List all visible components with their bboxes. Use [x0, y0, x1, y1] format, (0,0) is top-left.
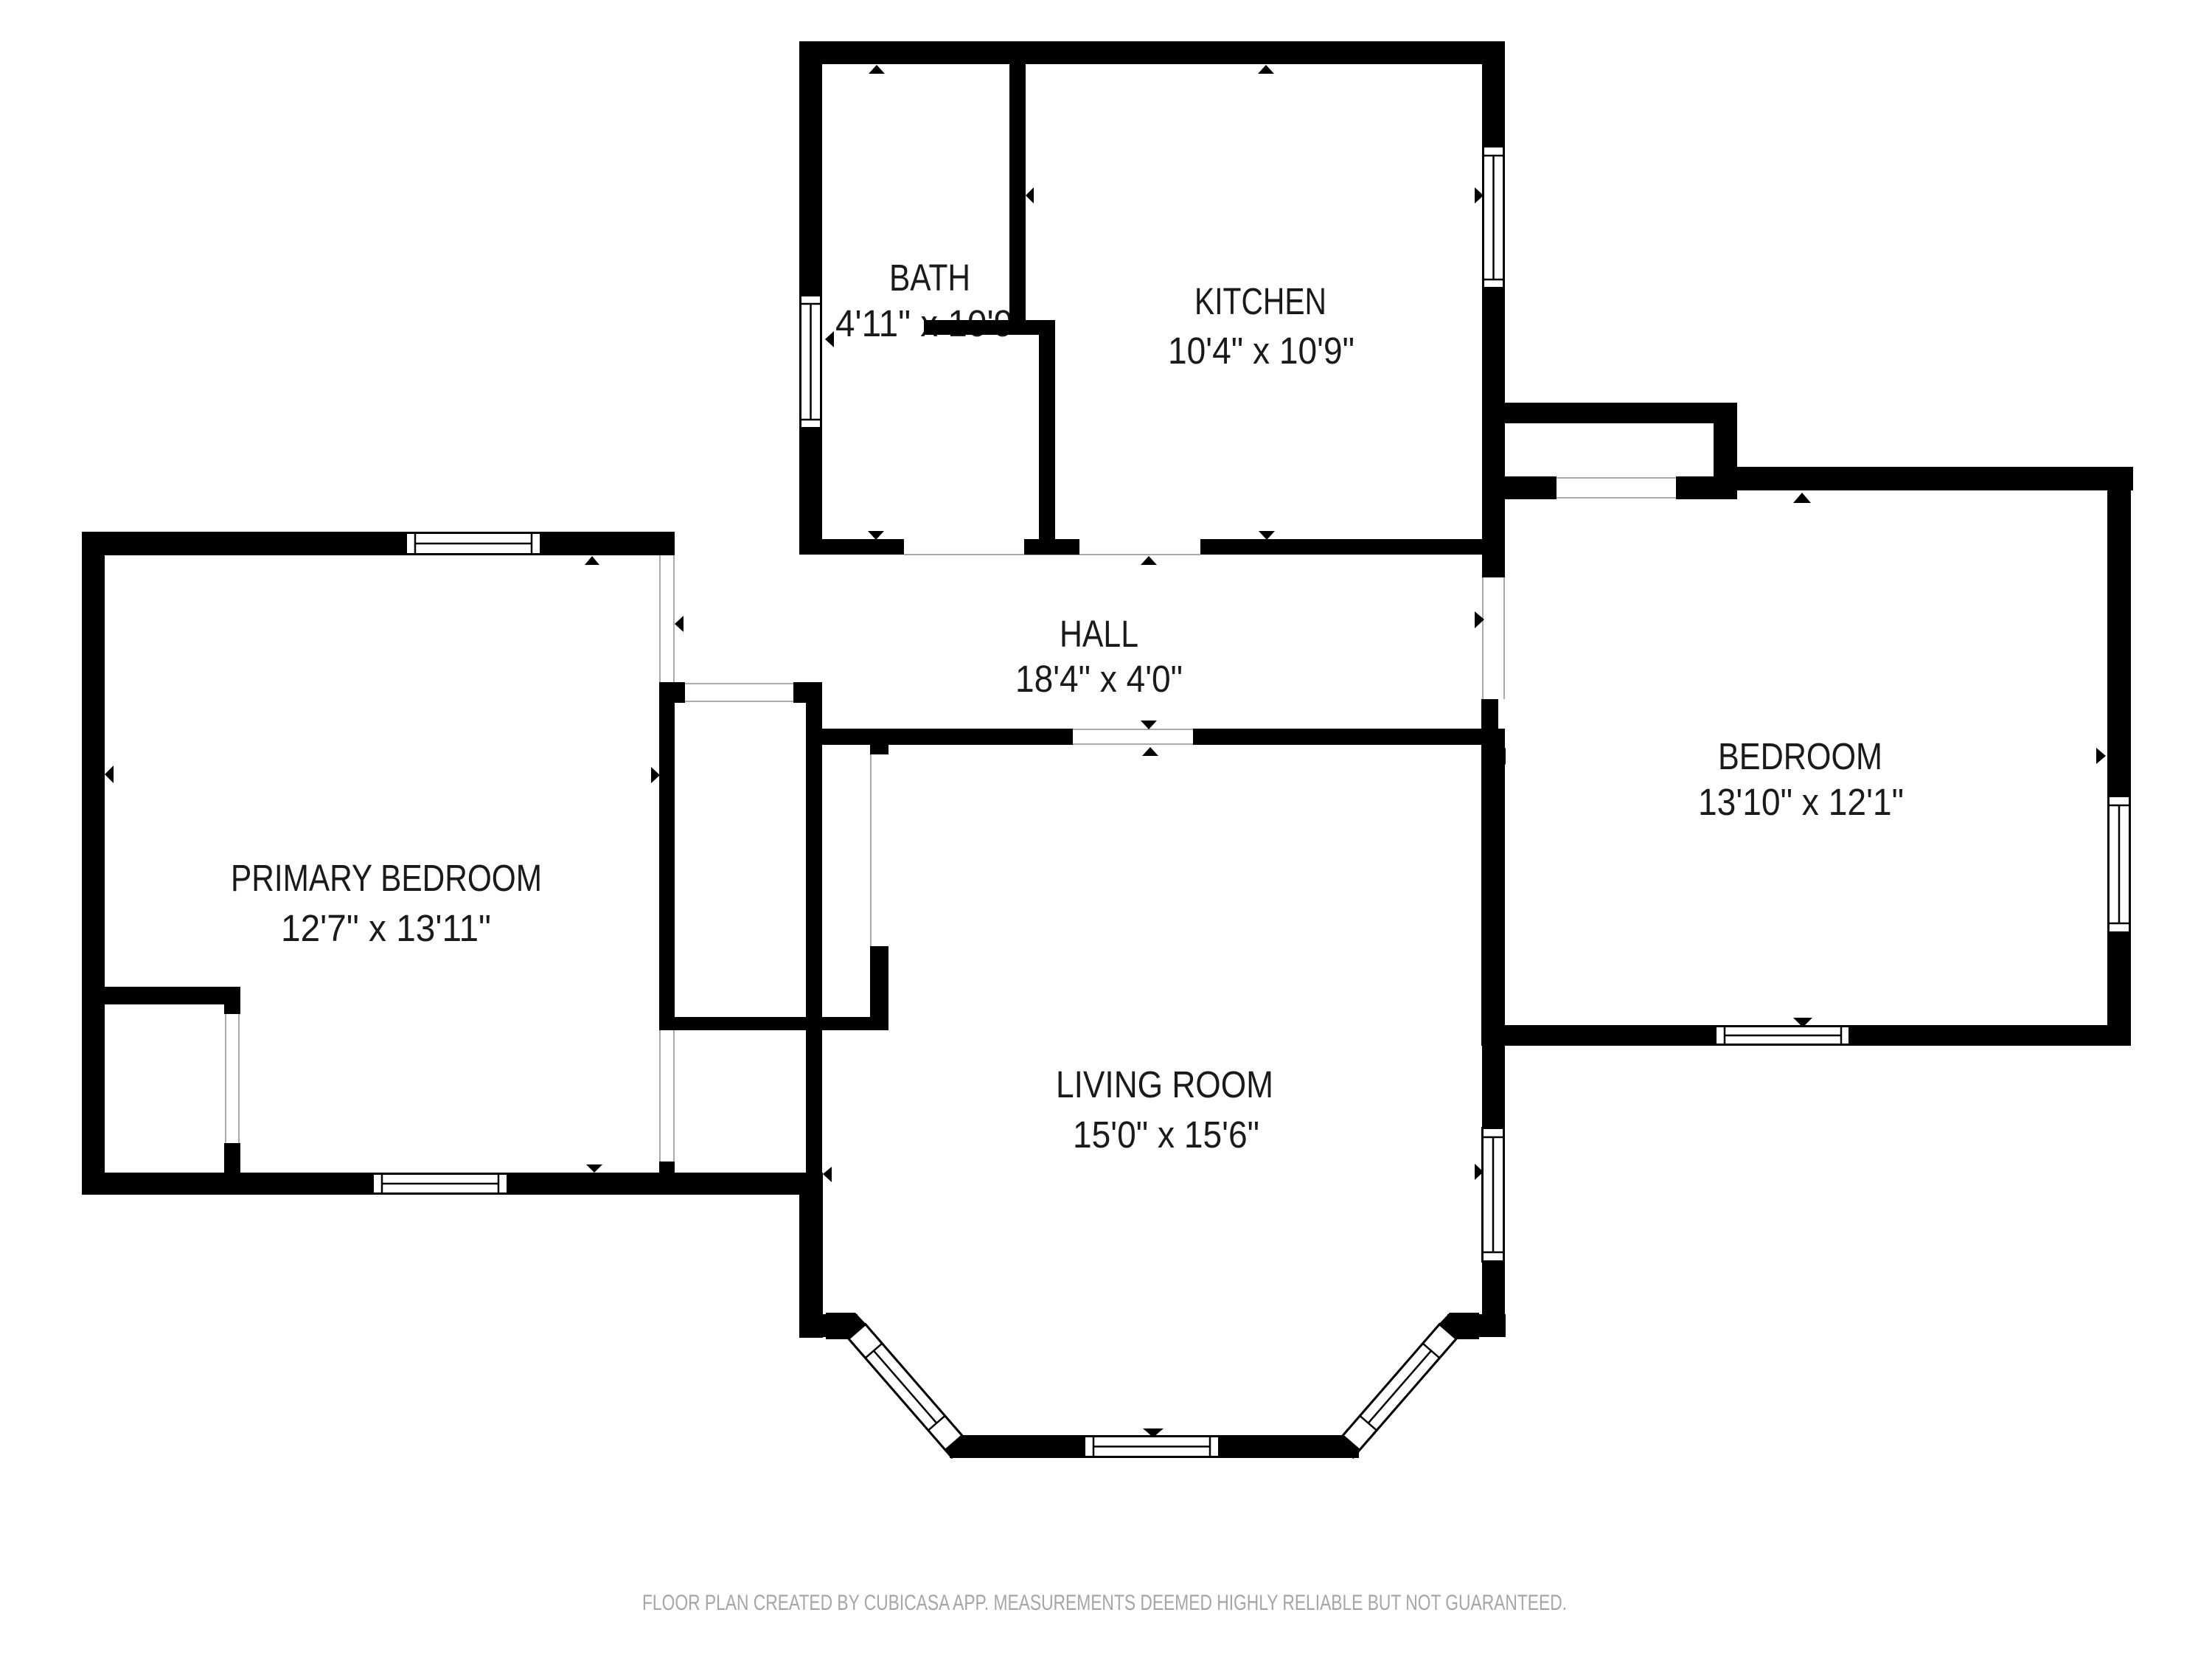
svg-text:12'7" x 13'11": 12'7" x 13'11" [281, 907, 491, 949]
svg-text:18'4" x 4'0": 18'4" x 4'0" [1015, 658, 1183, 700]
svg-text:LIVING ROOM: LIVING ROOM [1056, 1063, 1273, 1105]
svg-text:15'0" x 15'6": 15'0" x 15'6" [1073, 1114, 1259, 1156]
svg-text:KITCHEN: KITCHEN [1194, 280, 1326, 322]
svg-text:10'4" x 10'9": 10'4" x 10'9" [1168, 330, 1354, 372]
svg-text:BATH: BATH [889, 257, 970, 299]
svg-text:FLOOR PLAN CREATED BY CUBICASA: FLOOR PLAN CREATED BY CUBICASA APP. MEAS… [642, 1591, 1567, 1615]
svg-text:13'10" x 12'1": 13'10" x 12'1" [1698, 781, 1904, 823]
svg-text:PRIMARY BEDROOM: PRIMARY BEDROOM [231, 857, 542, 899]
svg-text:BEDROOM: BEDROOM [1718, 735, 1882, 777]
svg-text:HALL: HALL [1060, 613, 1138, 655]
